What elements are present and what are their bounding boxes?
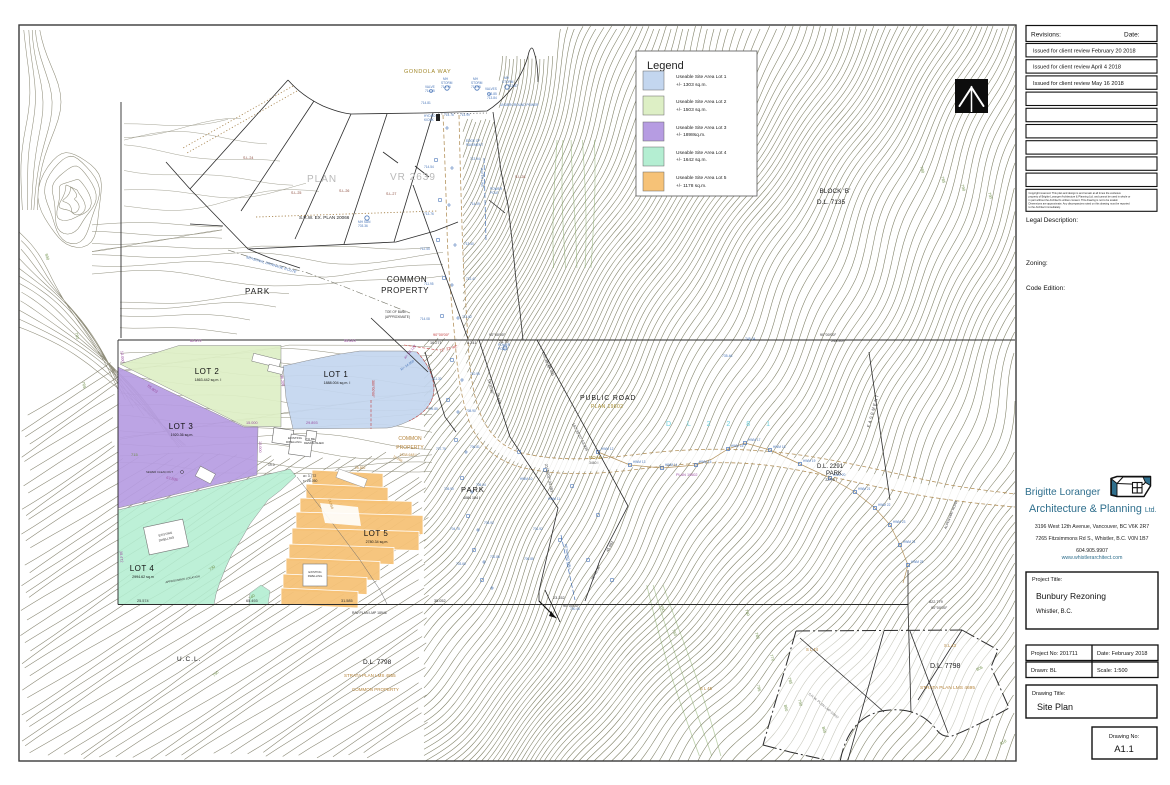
svg-text:D L 2 2 8 1: D L 2 2 8 1 <box>666 421 777 428</box>
svg-text:COMMON: COMMON <box>387 275 427 284</box>
svg-text:90°00′00″: 90°00′00″ <box>820 333 837 337</box>
svg-text:1338.648 I: 1338.648 I <box>400 453 417 457</box>
svg-text:25.574: 25.574 <box>137 599 149 603</box>
svg-text:Architecture & Planning Ltd.: Architecture & Planning Ltd. <box>1029 503 1157 515</box>
svg-text:25.892: 25.892 <box>355 466 365 470</box>
svg-text:90°00′00″: 90°00′00″ <box>433 333 450 337</box>
svg-text:Dimensions are approximate. An: Dimensions are approximate. Any discrepa… <box>1029 202 1131 206</box>
svg-text:GONDOLA WAY: GONDOLA WAY <box>404 69 451 75</box>
svg-text:Useable Site Area Lot 5: Useable Site Area Lot 5 <box>676 175 727 181</box>
svg-text:Legend: Legend <box>647 60 684 72</box>
svg-text:713.40: 713.40 <box>464 242 474 246</box>
svg-text:+/- 1898sq.m.: +/- 1898sq.m. <box>676 132 705 138</box>
svg-text:DWELLING: DWELLING <box>286 440 302 444</box>
svg-text:713.84: 713.84 <box>487 96 497 100</box>
svg-text:Bunbury Rezoning: Bunbury Rezoning <box>1036 591 1106 601</box>
svg-text:Useable Site Area Lot 4: Useable Site Area Lot 4 <box>676 150 727 156</box>
svg-text:1920.36 sq.m.: 1920.36 sq.m. <box>171 433 194 437</box>
svg-text:PROPERTY: PROPERTY <box>396 445 424 451</box>
svg-text:Drawn: BL: Drawn: BL <box>1031 668 1057 674</box>
svg-text:714.25: 714.25 <box>425 89 435 93</box>
svg-text:HWM 16: HWM 16 <box>731 444 744 448</box>
svg-text:property of Brigitte Loranger: property of Brigitte Loranger Architectu… <box>1029 194 1131 198</box>
svg-text:735.46: 735.46 <box>722 354 732 358</box>
svg-text:8.241: 8.241 <box>467 341 477 345</box>
svg-text:702.88: 702.88 <box>490 555 500 559</box>
svg-text:15.000: 15.000 <box>258 441 262 453</box>
svg-text:55.843: 55.843 <box>344 339 356 343</box>
svg-text:POLE: POLE <box>490 191 499 195</box>
svg-text:Copyright reserved. This plan: Copyright reserved. This plan and design… <box>1029 191 1122 195</box>
svg-text:S.L.25: S.L.25 <box>291 191 301 195</box>
svg-text:LOT 4: LOT 4 <box>130 564 155 573</box>
svg-text:15.000: 15.000 <box>246 421 258 425</box>
svg-text:D.L. 2291: D.L. 2291 <box>817 464 844 470</box>
svg-text:HWM 24: HWM 24 <box>903 540 916 544</box>
svg-text:PUBLIC ROAD: PUBLIC ROAD <box>580 395 636 402</box>
svg-text:Date:: Date: <box>1124 32 1140 39</box>
svg-text:TOE OF BANK: TOE OF BANK <box>385 310 407 314</box>
svg-text:S.L.28: S.L.28 <box>515 175 525 179</box>
svg-text:3460 I: 3460 I <box>589 461 598 465</box>
svg-text:Site Plan: Site Plan <box>1037 702 1073 712</box>
svg-text:710.95: 710.95 <box>470 372 480 376</box>
svg-text:745.34: 745.34 <box>745 337 755 341</box>
svg-text:UNDERGROUND POWER: UNDERGROUND POWER <box>500 103 539 107</box>
svg-text:713.94: 713.94 <box>470 157 480 161</box>
svg-text:KIOSK: KIOSK <box>424 118 435 122</box>
svg-text:to the Architect immediately.: to the Architect immediately. <box>1029 205 1062 209</box>
svg-text:Useable Site Area Lot 3: Useable Site Area Lot 3 <box>676 125 727 131</box>
svg-text:90°00′00″: 90°00′00″ <box>931 606 948 610</box>
svg-text:712.55: 712.55 <box>420 247 430 251</box>
svg-text:S L 45: S L 45 <box>700 686 713 691</box>
svg-text:714.76: 714.76 <box>444 113 454 117</box>
svg-text:Drawing No:: Drawing No: <box>1109 734 1140 740</box>
svg-text:16.271: 16.271 <box>430 341 442 345</box>
svg-text:D.L. 7798: D.L. 7798 <box>930 663 960 670</box>
svg-text:Brigitte Loranger: Brigitte Loranger <box>1025 487 1101 498</box>
svg-text:2780.34 sq.m.: 2780.34 sq.m. <box>366 540 389 544</box>
svg-text:S.L.24: S.L.24 <box>243 156 253 160</box>
svg-text:DEMOLISHED: DEMOLISHED <box>304 441 325 445</box>
svg-text:708.90: 708.90 <box>466 409 476 413</box>
svg-text:23.152: 23.152 <box>553 596 565 600</box>
svg-text:HWM 12: HWM 12 <box>601 447 614 451</box>
svg-text:LOT 5: LOT 5 <box>364 529 389 538</box>
svg-text:714.81: 714.81 <box>421 101 431 105</box>
svg-text:DWELLING: DWELLING <box>308 574 323 578</box>
svg-text:HWM 18: HWM 18 <box>773 445 786 449</box>
svg-text:S L 44: S L 44 <box>806 647 819 652</box>
svg-text:713.87: 713.87 <box>508 84 518 88</box>
svg-text:WATER LINE: WATER LINE <box>480 168 485 187</box>
svg-text:HWM 22: HWM 22 <box>878 503 891 507</box>
svg-text:715: 715 <box>131 452 138 457</box>
svg-text:www.whistlerarchitect.com: www.whistlerarchitect.com <box>1062 555 1123 561</box>
svg-text:701.92: 701.92 <box>533 527 543 531</box>
svg-text:706.81: 706.81 <box>470 445 480 449</box>
svg-text:COMMON: COMMON <box>398 436 422 442</box>
svg-text:VR 2639: VR 2639 <box>390 172 436 183</box>
svg-text:SEWER CLEAN OUT: SEWER CLEAN OUT <box>146 470 173 474</box>
svg-text:711.30: 711.30 <box>432 377 442 381</box>
svg-text:604.905.9907: 604.905.9907 <box>1076 548 1108 554</box>
svg-text:Scale: 1:500: Scale: 1:500 <box>1097 668 1128 674</box>
svg-text:700.85: 700.85 <box>524 557 534 561</box>
svg-text:Issued for client review Apri: Issued for client review April 4 2018 <box>1033 65 1121 71</box>
svg-text:700.45: 700.45 <box>570 607 580 611</box>
svg-text:709.85: 709.85 <box>428 407 438 411</box>
svg-text:HWM 21: HWM 21 <box>858 487 871 491</box>
svg-text:22778 I: 22778 I <box>825 478 836 482</box>
svg-text:Zoning:: Zoning: <box>1026 260 1048 267</box>
svg-text:S.L 43: S.L 43 <box>944 643 957 648</box>
svg-text:HWM 13: HWM 13 <box>633 460 646 464</box>
svg-text:HWM 14: HWM 14 <box>665 463 678 467</box>
svg-text:PLAN: PLAN <box>307 174 337 185</box>
svg-text:703.36: 703.36 <box>358 224 368 228</box>
svg-text:248.407: 248.407 <box>831 339 845 343</box>
svg-text:712.47: 712.47 <box>466 277 476 281</box>
svg-text:LOT 2: LOT 2 <box>195 367 220 376</box>
svg-text:19.0: 19.0 <box>268 463 275 467</box>
svg-text:713.76: 713.76 <box>424 212 434 216</box>
svg-text:+/- 1303 sq.m.: +/- 1303 sq.m. <box>676 82 707 88</box>
svg-text:7265 Fitzsimmons Rd S., Whistl: 7265 Fitzsimmons Rd S., Whistler, B.C. V… <box>1035 536 1148 542</box>
svg-text:a= 3.772: a= 3.772 <box>303 474 316 478</box>
svg-text:713.62: 713.62 <box>462 315 472 319</box>
svg-text:1863.442 sq.m. I: 1863.442 sq.m. I <box>195 378 222 382</box>
svg-text:HWM 10: HWM 10 <box>520 477 533 481</box>
svg-text:HWM 15: HWM 15 <box>699 460 712 464</box>
svg-text:COMMON PROPERTY: COMMON PROPERTY <box>352 687 399 692</box>
svg-text:LOT 3: LOT 3 <box>169 422 194 431</box>
svg-text:Legal Description:: Legal Description: <box>1026 217 1078 224</box>
svg-text:D.L. 7798: D.L. 7798 <box>363 659 392 666</box>
svg-text:90°00′00″: 90°00′00″ <box>489 333 506 337</box>
svg-text:STRATA PLAN LMS 4855: STRATA PLAN LMS 4855 <box>344 673 396 678</box>
svg-text:714.09: 714.09 <box>470 202 480 206</box>
svg-text:714.99: 714.99 <box>460 113 470 117</box>
svg-text:PARK: PARK <box>826 471 842 477</box>
svg-text:HWM 11: HWM 11 <box>548 497 560 501</box>
svg-text:PROPERTY: PROPERTY <box>381 286 429 295</box>
svg-text:POLE: POLE <box>498 347 507 351</box>
svg-text:S.L.26: S.L.26 <box>339 189 349 193</box>
svg-text:+/- 1642 sq.m.: +/- 1642 sq.m. <box>676 157 707 163</box>
svg-text:STRATA PLAN LMS 4695: STRATA PLAN LMS 4695 <box>920 685 975 691</box>
svg-text:31.585: 31.585 <box>341 599 353 603</box>
svg-text:D.L. 7135: D.L. 7135 <box>817 199 846 206</box>
svg-text:Date: February 2018: Date: February 2018 <box>1097 651 1147 657</box>
svg-text:R/W PLAN LMP 18946: R/W PLAN LMP 18946 <box>352 611 387 615</box>
svg-text:29.893: 29.893 <box>306 421 318 425</box>
svg-text:Project Title:: Project Title: <box>1032 577 1063 583</box>
svg-text:ROAD: ROAD <box>589 455 603 460</box>
svg-text:Code Edition:: Code Edition: <box>1026 285 1065 292</box>
svg-text:822.779: 822.779 <box>929 600 943 604</box>
svg-text:PARK: PARK <box>245 287 270 296</box>
svg-text:PARK: PARK <box>461 485 485 494</box>
svg-text:r= 28.050: r= 28.050 <box>303 479 318 483</box>
svg-text:PAVEMENT: PAVEMENT <box>466 143 483 147</box>
svg-text:Whistler, B.C.: Whistler, B.C. <box>1036 609 1073 615</box>
svg-text:Useable Site Area Lot 1: Useable Site Area Lot 1 <box>676 74 727 80</box>
svg-text:714.76: 714.76 <box>441 85 451 89</box>
svg-text:35.052: 35.052 <box>434 599 446 603</box>
svg-text:HWM 17: HWM 17 <box>748 438 761 442</box>
svg-text:PLAN 19602: PLAN 19602 <box>676 473 698 477</box>
svg-text:Issued for client review May: Issued for client review May 16 2018 <box>1033 81 1124 87</box>
svg-text:Project No: 201711: Project No: 201711 <box>1031 651 1078 657</box>
svg-text:1888.004 sq.m. I: 1888.004 sq.m. I <box>324 381 351 385</box>
svg-text:703.92: 703.92 <box>484 521 494 525</box>
svg-text:(APPROXIMATE): (APPROXIMATE) <box>385 315 410 319</box>
svg-text:Revisions:: Revisions: <box>1031 32 1061 39</box>
svg-text:714.08: 714.08 <box>420 317 430 321</box>
svg-text:BLOCK ‘B’: BLOCK ‘B’ <box>819 188 851 195</box>
svg-text:U.C.L.: U.C.L. <box>177 656 201 663</box>
svg-text:VALVES: VALVES <box>485 87 497 91</box>
svg-text:in part without the Architect’: in part without the Architect’s written … <box>1029 198 1119 202</box>
svg-text:+/- 1503 sq.m.: +/- 1503 sq.m. <box>676 107 707 113</box>
svg-text:380°00′00″: 380°00′00″ <box>371 380 375 398</box>
svg-text:Issued for client review Febr: Issued for client review February 20 201… <box>1033 49 1136 55</box>
svg-text:Drawing Title:: Drawing Title: <box>1032 691 1066 697</box>
svg-text:714.54: 714.54 <box>424 165 434 169</box>
svg-text:HWM 25: HWM 25 <box>911 560 924 564</box>
svg-text:S.L.27: S.L.27 <box>386 192 396 196</box>
svg-text:2994.62 sq.m: 2994.62 sq.m <box>132 575 154 579</box>
svg-text:713.95: 713.95 <box>471 85 481 89</box>
svg-text:LOT 1: LOT 1 <box>324 370 349 379</box>
svg-text:PLAN 19602: PLAN 19602 <box>591 404 623 410</box>
svg-text:HWM 23: HWM 23 <box>893 520 906 524</box>
svg-text:HWM 19: HWM 19 <box>803 459 816 463</box>
svg-text:A1.1: A1.1 <box>1114 744 1134 755</box>
svg-text:703.60: 703.60 <box>456 562 466 566</box>
svg-text:704.75: 704.75 <box>450 527 460 531</box>
svg-text:4084 104 I: 4084 104 I <box>463 496 480 500</box>
svg-text:62.872: 62.872 <box>190 339 202 343</box>
svg-text:707.75: 707.75 <box>436 447 446 451</box>
svg-text:705.90: 705.90 <box>444 487 454 491</box>
svg-text:3196 West 12th Avenue, Vancouv: 3196 West 12th Avenue, Vancouver, BC V6K… <box>1035 524 1149 530</box>
svg-text:S.R.W. EX. PLAN 20066: S.R.W. EX. PLAN 20066 <box>299 215 350 220</box>
svg-text:+/- 1178 sq.m.: +/- 1178 sq.m. <box>676 183 706 189</box>
svg-text:Useable Site Area Lot 2: Useable Site Area Lot 2 <box>676 99 727 105</box>
